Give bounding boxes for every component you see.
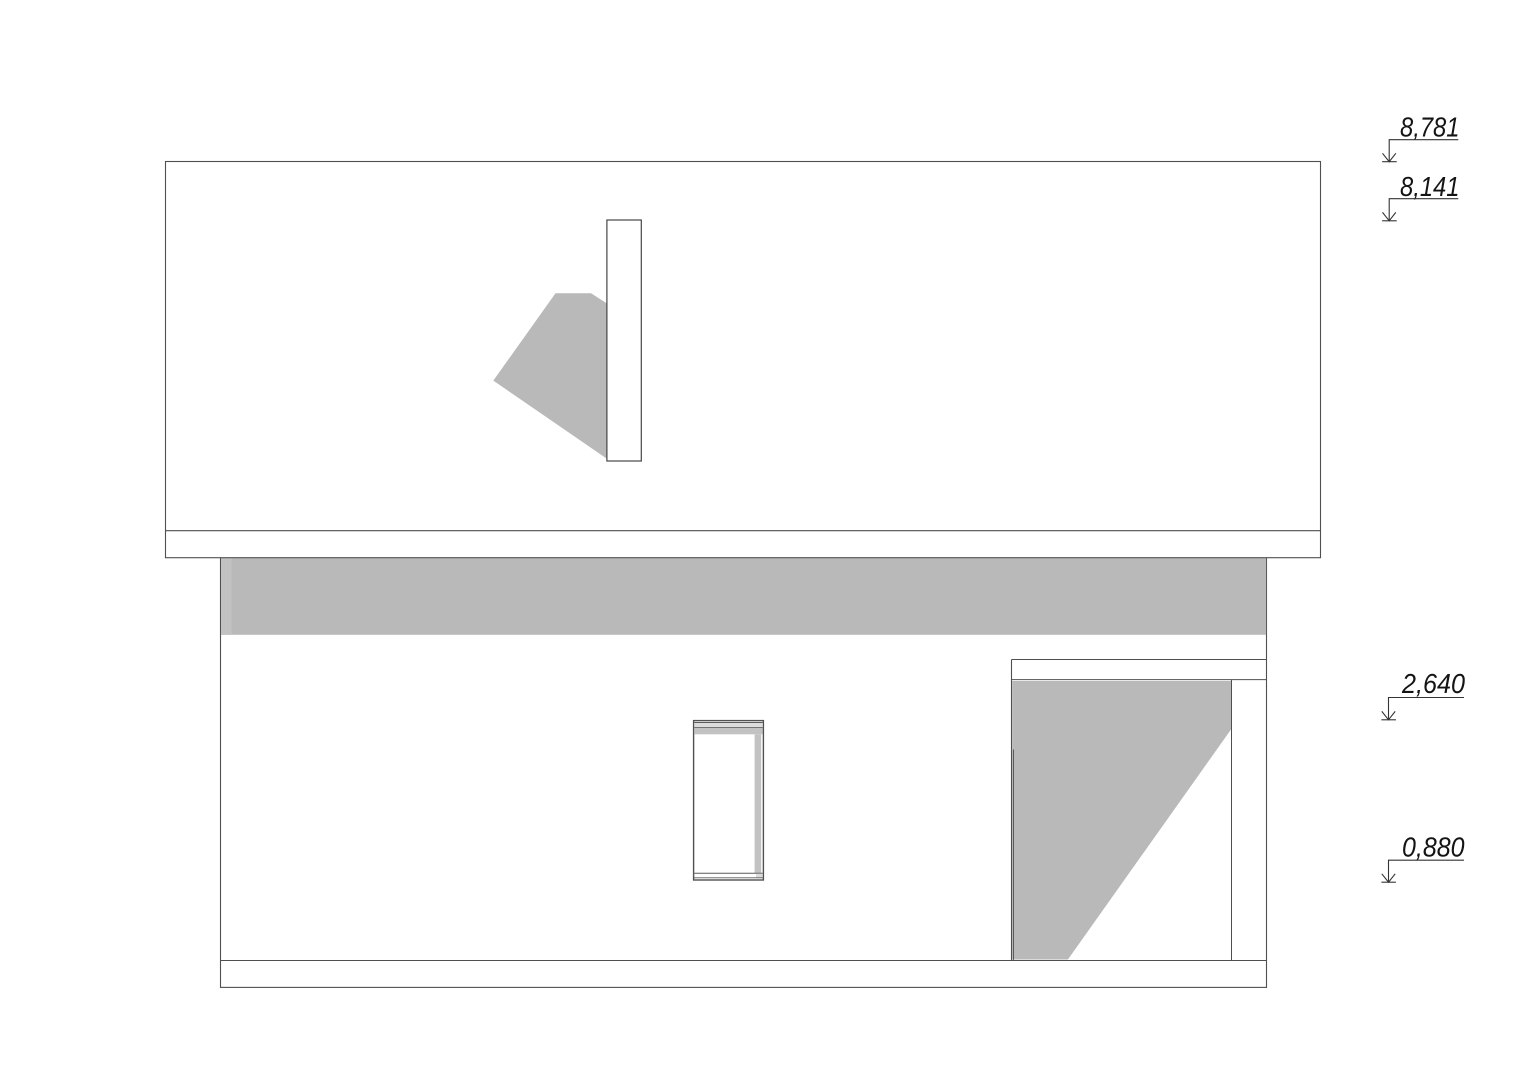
svg-text:8,141: 8,141 bbox=[1400, 171, 1460, 202]
svg-text:2,640: 2,640 bbox=[1401, 668, 1466, 699]
svg-text:8,781: 8,781 bbox=[1400, 112, 1460, 143]
svg-text:0,880: 0,880 bbox=[1402, 831, 1465, 862]
